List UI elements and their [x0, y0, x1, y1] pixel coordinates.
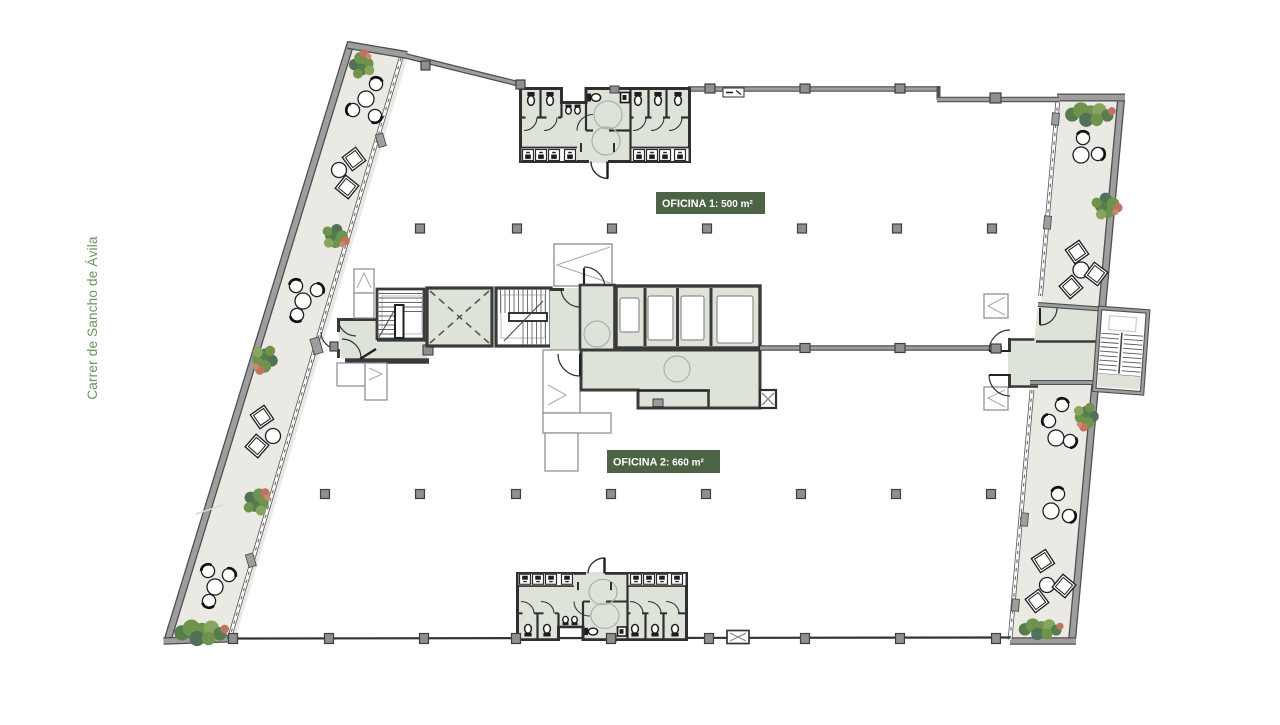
svg-text:OFICINA 2: 660 m²: OFICINA 2: 660 m²: [613, 457, 704, 469]
svg-text:Carrer de Sancho de Ávila: Carrer de Sancho de Ávila: [85, 236, 100, 400]
svg-text:OFICINA 1: 500 m²: OFICINA 1: 500 m²: [662, 198, 753, 210]
